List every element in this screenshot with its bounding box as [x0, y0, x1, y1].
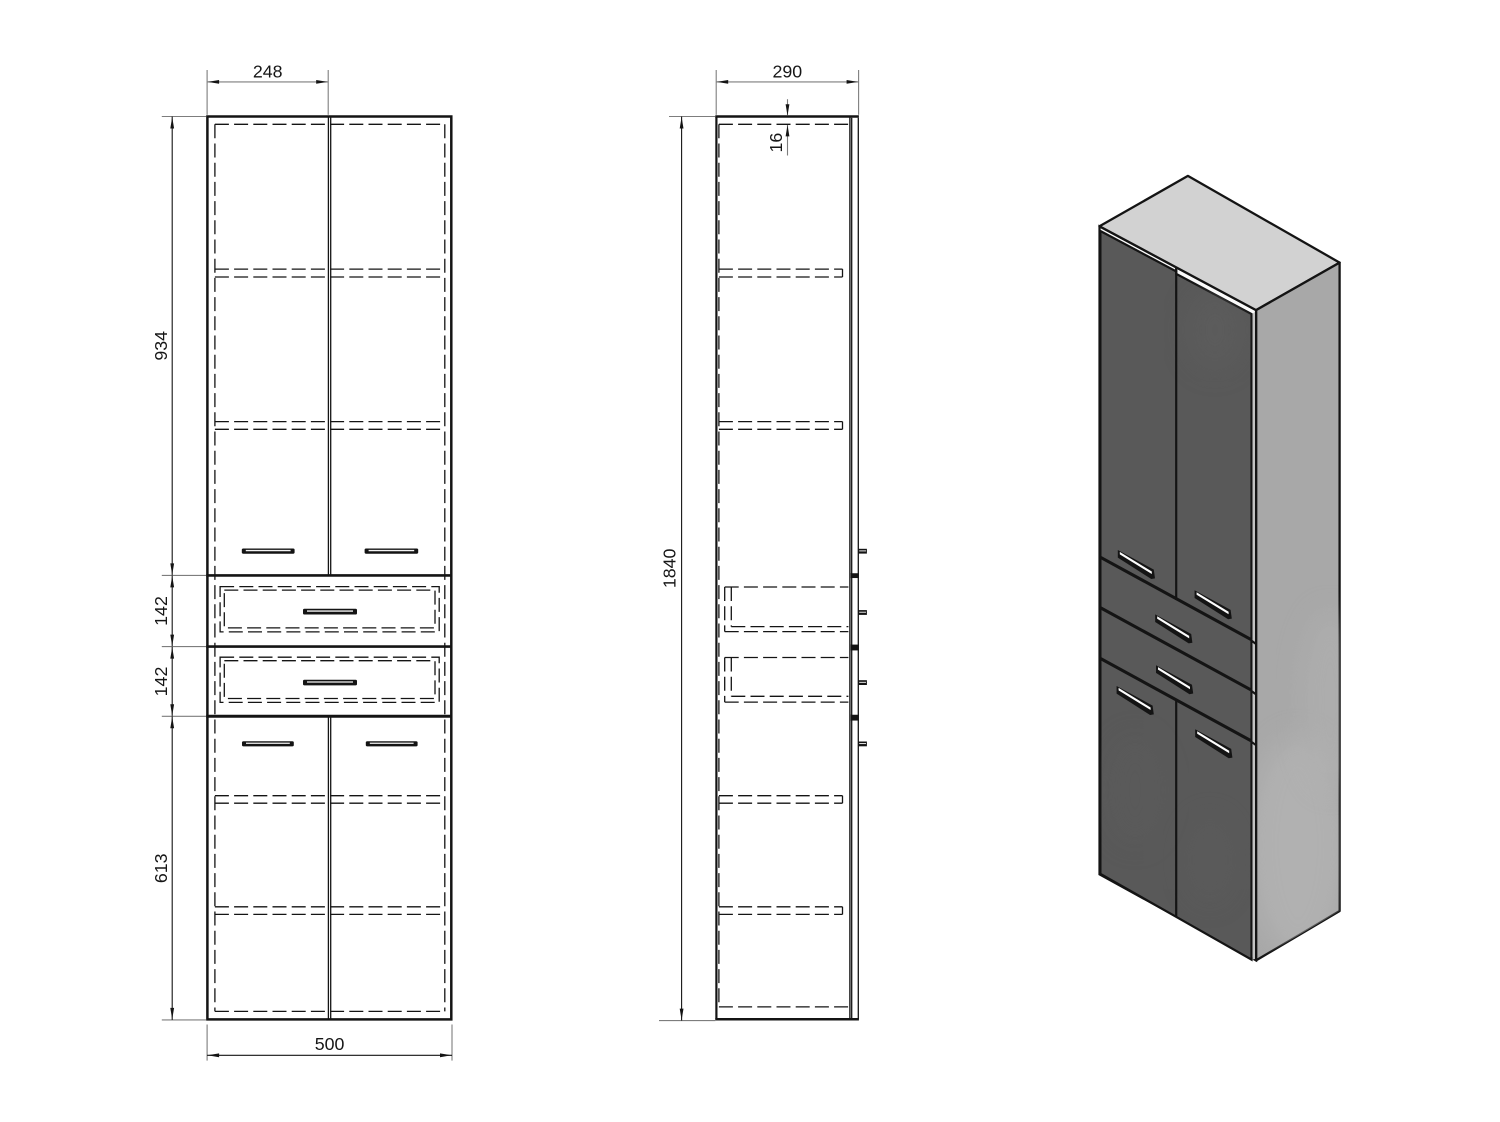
svg-text:248: 248 — [253, 61, 283, 81]
svg-text:613: 613 — [151, 853, 171, 883]
svg-text:142: 142 — [151, 596, 171, 626]
svg-text:934: 934 — [151, 331, 171, 361]
svg-text:1840: 1840 — [659, 549, 679, 589]
svg-text:142: 142 — [151, 667, 171, 697]
svg-text:16: 16 — [766, 133, 786, 153]
svg-text:500: 500 — [315, 1034, 345, 1054]
svg-text:290: 290 — [772, 61, 802, 81]
